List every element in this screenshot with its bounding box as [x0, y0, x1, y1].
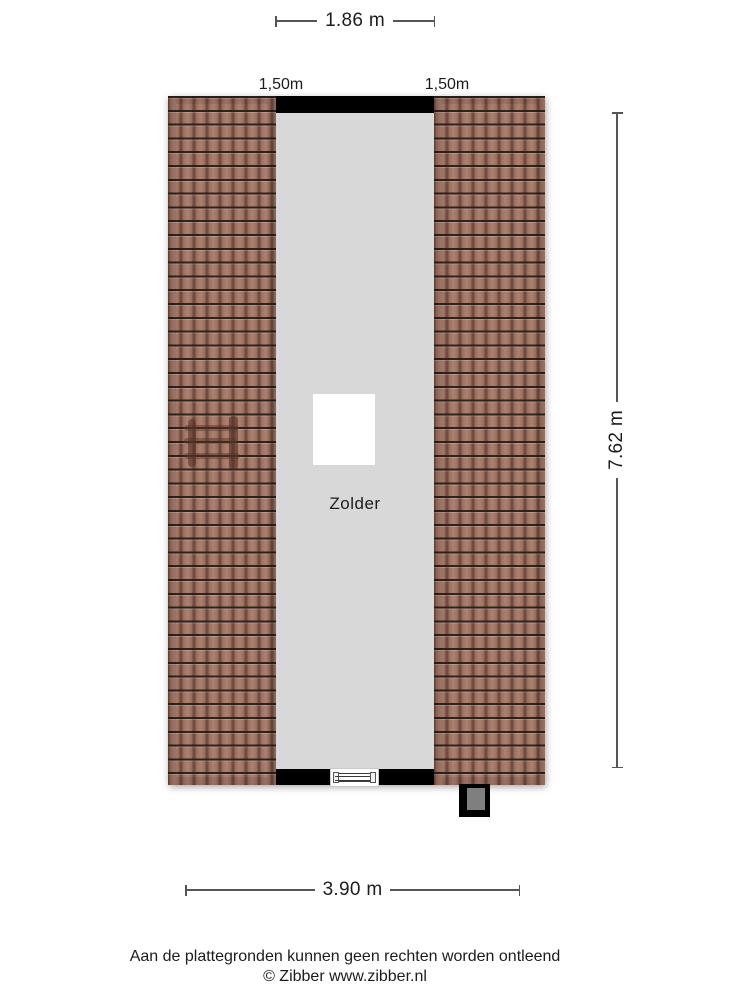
chimney-flue: [467, 788, 485, 810]
ladder-rung: [184, 453, 240, 459]
chimney: [459, 784, 490, 817]
floorplan-canvas: 1.86 m 1,50m 1,50m Zolder: [0, 0, 750, 1000]
dimension-tick: [434, 16, 436, 27]
roof-right: [434, 96, 545, 785]
roof-left: [168, 96, 276, 785]
dimension-line: [390, 889, 518, 891]
ladder-rung: [184, 425, 238, 431]
dimension-line: [187, 889, 315, 891]
roof-ladder: [184, 416, 240, 470]
attic-interior: Zolder: [276, 96, 434, 785]
dimension-line: [616, 478, 618, 767]
footer-disclaimer: Aan de plattegronden kunnen geen rechten…: [0, 947, 690, 967]
dimension-top-label: 1.86 m: [317, 10, 393, 32]
skylight-opening: [313, 394, 375, 465]
dimension-bottom: 3.90 m: [185, 881, 520, 899]
roof-window: [330, 768, 379, 787]
window-glazing: [334, 773, 375, 782]
ladder-rung: [184, 438, 236, 444]
dimension-tick: [519, 885, 521, 896]
dimension-bottom-label: 3.90 m: [315, 879, 391, 901]
window-frame-cap-right: [370, 772, 376, 783]
dimension-right-label: 7.62 m: [606, 402, 628, 478]
dimension-line: [393, 20, 434, 22]
dimension-top: 1.86 m: [275, 12, 435, 30]
window-glass-line: [335, 776, 374, 781]
dimension-tick: [612, 767, 623, 769]
eave-height-label-right: 1,50m: [406, 76, 488, 94]
footer-copyright: © Zibber www.zibber.nl: [0, 967, 690, 987]
dimension-line: [616, 114, 618, 403]
floorplan-body: Zolder: [168, 96, 545, 785]
attic-wall-top: [276, 96, 434, 113]
footer: Aan de plattegronden kunnen geen rechten…: [0, 947, 690, 987]
room-label: Zolder: [276, 494, 434, 514]
dimension-right: 7.62 m: [610, 112, 624, 768]
eave-height-label-left: 1,50m: [240, 76, 322, 94]
dimension-line: [277, 20, 318, 22]
